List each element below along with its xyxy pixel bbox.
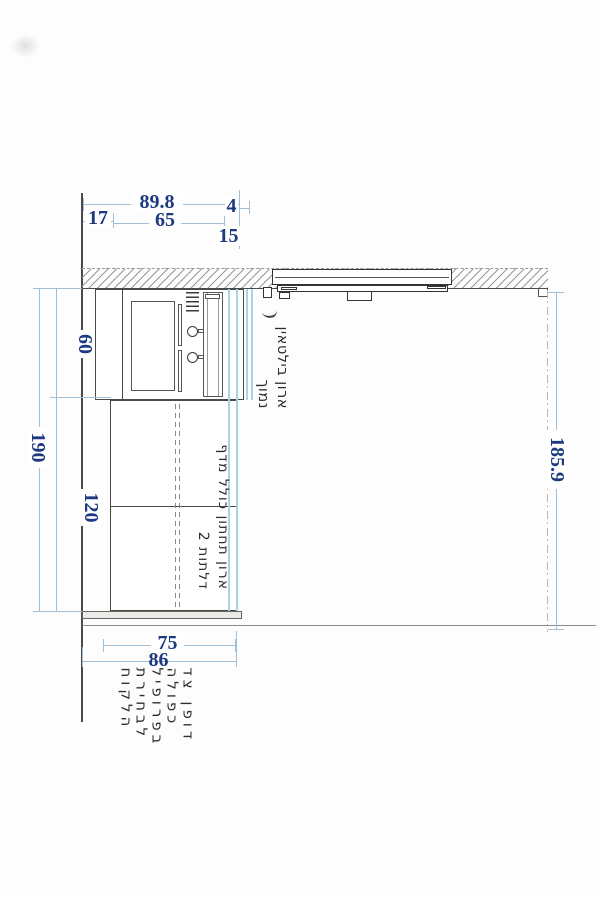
dim-tick <box>83 198 84 211</box>
side-panel-note-line3: בפרופיל <box>149 668 165 773</box>
side-panel-line-1 <box>207 293 208 396</box>
door-track-bracket <box>347 292 372 301</box>
side-panel-top-block <box>205 294 220 299</box>
dim-ext <box>33 288 82 289</box>
dim-ext <box>82 647 83 667</box>
dim-text-65: 65 <box>149 210 181 230</box>
door-track-left-hook <box>279 292 290 299</box>
cyan-line-2 <box>236 289 238 611</box>
door-track-rail-right-cap <box>427 286 446 289</box>
lower-cabinet-label-line2: דלתות 2 <box>193 448 213 590</box>
knob-top <box>187 326 198 337</box>
dim-text-185-9: 185.9 <box>546 430 567 489</box>
side-panel-note-line4: לבחירת <box>134 668 150 773</box>
upper-cabinet-side-panel <box>203 292 223 397</box>
dim-text-4: 4 <box>225 196 238 216</box>
ceiling-left-end-piece <box>263 287 272 298</box>
door-track-rail <box>277 285 448 292</box>
handle-bar-bottom <box>178 350 182 392</box>
centerline-dashed-2 <box>179 404 180 608</box>
lower-cabinet-label: ארון תחתון כולל מדף דלתות 2 <box>193 448 233 590</box>
lower-cabinet-label-line1: ארון תחתון כולל מדף <box>213 448 233 590</box>
dim-text-120: 120 <box>80 489 101 526</box>
dim-tick <box>103 639 104 652</box>
scan-smudge <box>10 34 40 58</box>
cyan-line-3 <box>246 289 248 400</box>
dim-line-120 <box>56 397 57 611</box>
drawing-canvas: 89.8 17 65 4 15 190 60 120 185.9 75 86 א… <box>0 0 600 897</box>
knob-bottom <box>187 352 198 363</box>
dim-ext <box>50 397 111 398</box>
dim-text-17: 17 <box>85 208 111 228</box>
dim-tick <box>548 292 564 293</box>
door-track-housing-line <box>275 277 449 278</box>
upper-cabinet-label-line1: ארון בילטאין <box>272 299 291 409</box>
dim-tick <box>113 213 114 228</box>
dim-ext <box>33 611 82 612</box>
upper-cabinet-door-panel <box>131 301 175 391</box>
base-strip <box>82 611 242 619</box>
handle-bar-top <box>178 304 182 346</box>
upper-cabinet-divider <box>122 289 123 400</box>
side-panel-note: דופן צד כפולה בפרופיל לבחירת הלקוח <box>118 668 196 773</box>
side-panel-note-line5: הלקוח <box>118 668 134 773</box>
dim-text-190: 190 <box>27 427 48 468</box>
dim-tick <box>548 629 564 630</box>
dim-tick <box>249 201 250 214</box>
hinge-hardware <box>186 292 199 314</box>
upper-cabinet-label: ארון בילטאין נמוך <box>253 299 291 409</box>
side-panel-note-line1: דופן צד <box>180 668 196 773</box>
door-track-rail-left-cap <box>281 287 297 290</box>
dim-text-15: 15 <box>215 226 242 246</box>
side-panel-line-2 <box>218 293 219 396</box>
dim-text-60: 60 <box>75 330 95 358</box>
dim-line-4 <box>239 208 249 209</box>
upper-cabinet-label-line2: נמוך <box>253 299 272 409</box>
dim-line-60 <box>56 288 57 397</box>
dim-tick <box>235 639 236 652</box>
floor-line <box>82 625 596 626</box>
centerline-dashed-1 <box>175 404 176 608</box>
side-panel-note-line2: כפולה <box>165 668 181 773</box>
